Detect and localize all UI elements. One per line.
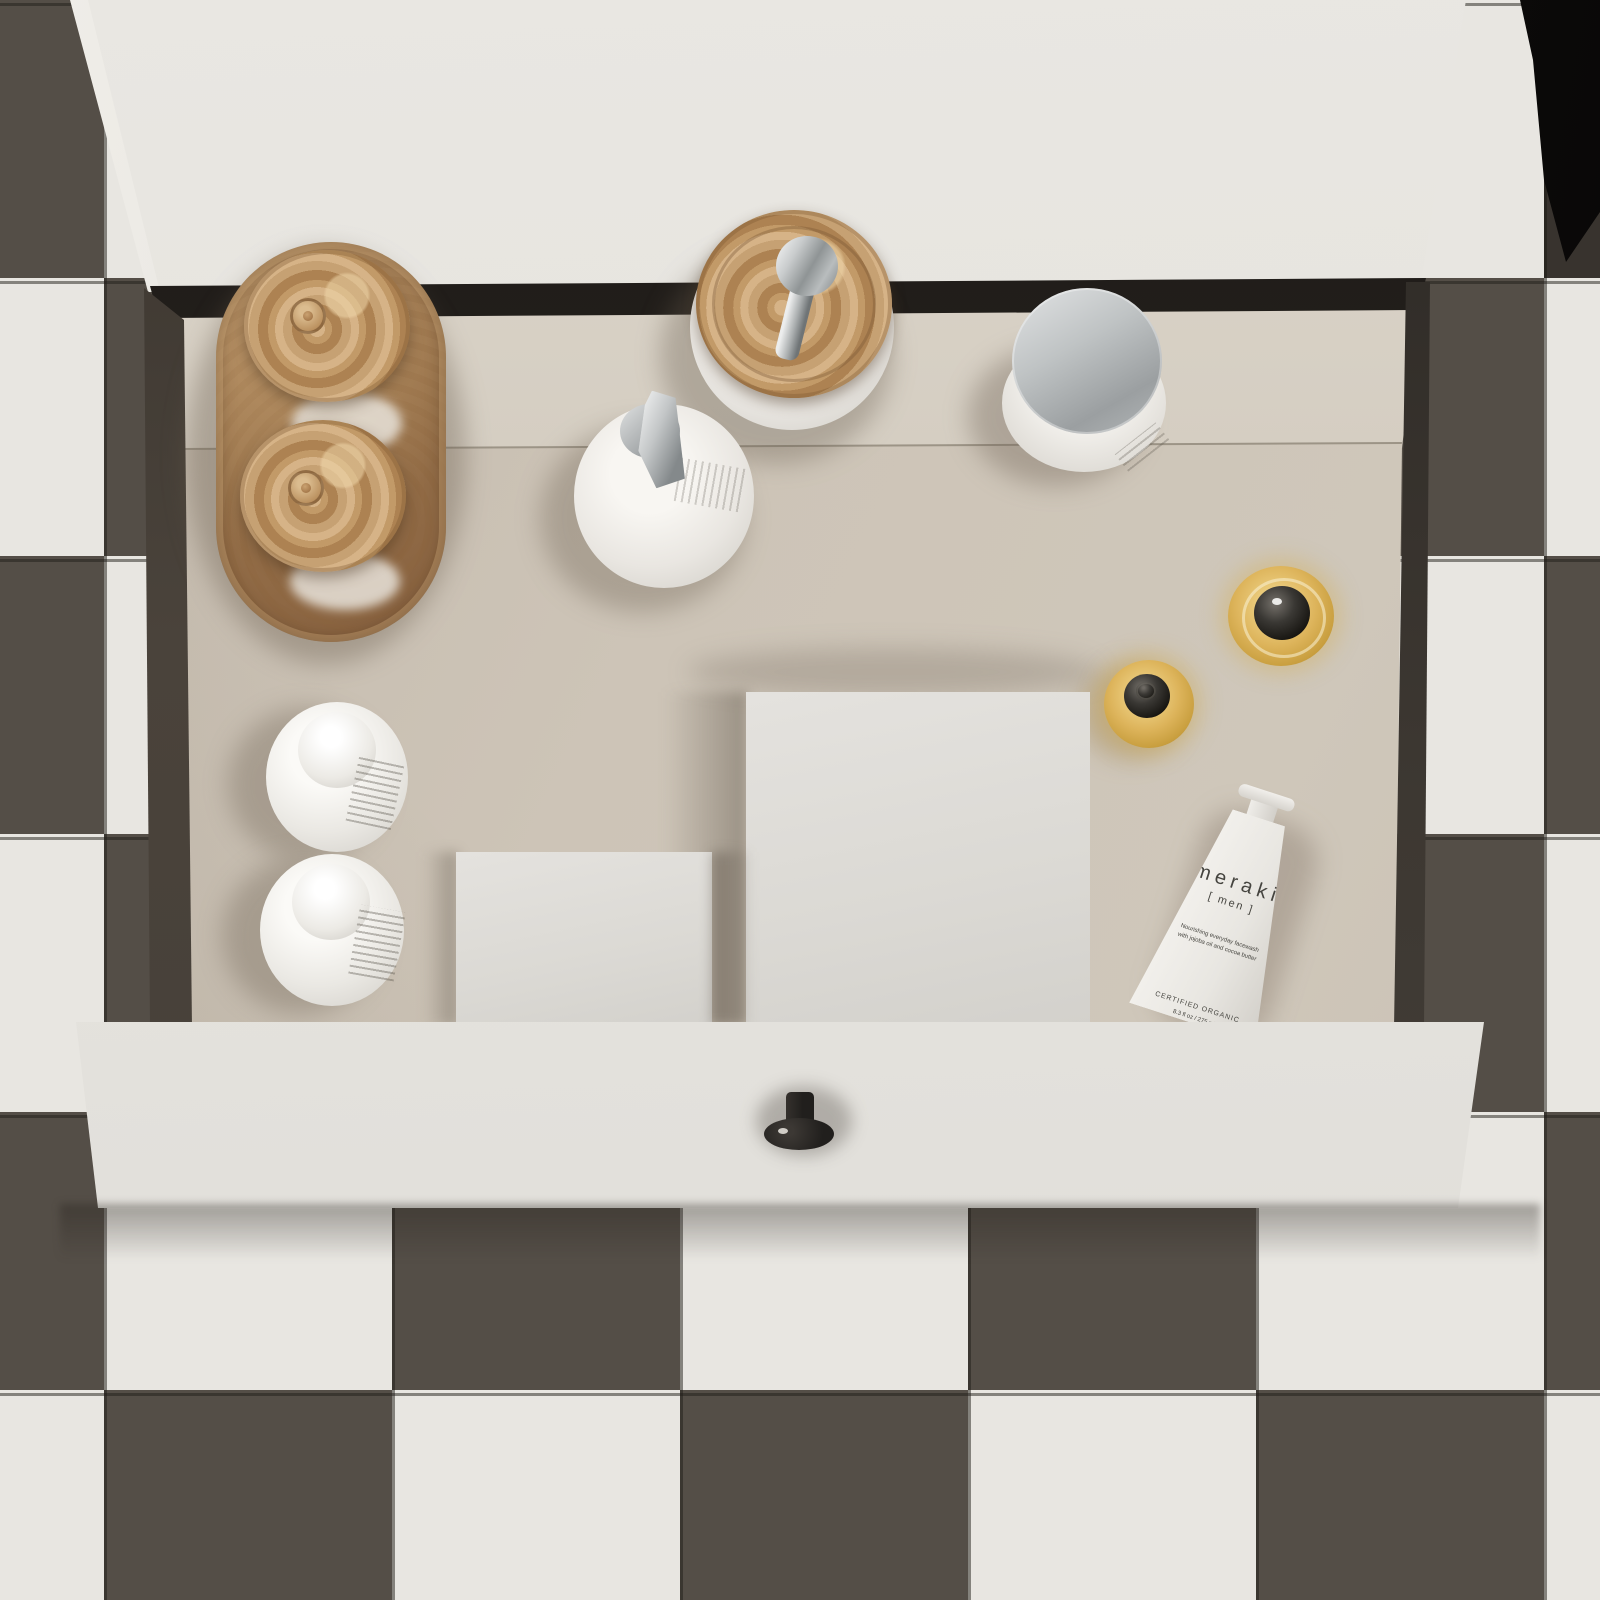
- knob-highlight: [778, 1128, 788, 1134]
- amber-large-ball-cap: [1254, 586, 1310, 640]
- jar-lid-ring: [288, 470, 324, 506]
- small-box-cast-shadow: [424, 852, 458, 1026]
- dispenser-pump-head: [776, 236, 838, 296]
- jar-lid-ring: [290, 298, 326, 334]
- jar-lid-ring-center: [303, 311, 314, 322]
- cap-highlight: [1272, 598, 1282, 605]
- drawer-front-cast-shadow: [60, 1204, 1540, 1260]
- box-top-shadow: [688, 648, 1098, 696]
- dropper-nub: [1136, 682, 1156, 700]
- burl-jar-lid: [240, 420, 406, 572]
- cream-jar-chrome-lid: [1012, 288, 1162, 434]
- small-white-box: [456, 852, 712, 1026]
- burl-jar-lid: [244, 250, 410, 402]
- scene: meraki [ men ] Nourishing everyday facew…: [0, 0, 1600, 1600]
- jar-lid-ring-center: [301, 483, 312, 494]
- between-boxes-shadow: [712, 852, 748, 1026]
- meraki-desc-text-2: with jojoba oil and cocoa butter: [1147, 922, 1286, 972]
- large-white-box: [746, 692, 1090, 1026]
- drawer-knob[interactable]: [764, 1118, 834, 1150]
